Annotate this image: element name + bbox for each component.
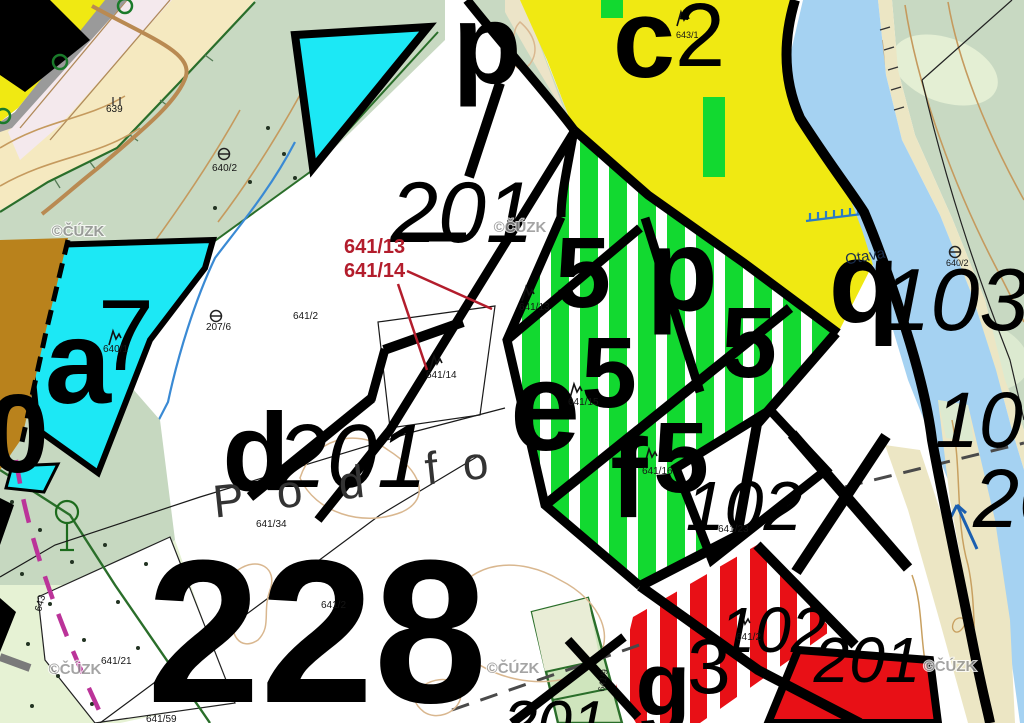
copyright-watermark: ©ČÚZK [924, 657, 977, 675]
red-annotation-label: 641/13 [344, 236, 405, 258]
copyright-watermark: ©ČÚZK [494, 218, 547, 236]
parcel-label: 5 [581, 317, 637, 429]
parcel-label: 0 [0, 372, 49, 496]
parcel-label: 7 [98, 280, 154, 392]
parcel-label: 228 [147, 518, 487, 723]
parcel-label: f [610, 416, 648, 541]
small-parcel-number: 641/14 [426, 370, 457, 381]
place-name-letter: d [336, 455, 367, 509]
small-parcel-number: 641/23 [718, 524, 749, 535]
parcel-label: g [636, 635, 691, 723]
small-parcel-number: 641/2 [293, 311, 318, 322]
cadastral-map-viewport[interactable]: p201c2a70d2012285p5e5f5102q103103201g310… [0, 0, 1024, 723]
small-parcel-number: 641/21 [101, 656, 132, 667]
small-parcel-number: 640/2 [946, 258, 969, 268]
parcel-label: 5 [721, 287, 777, 399]
small-parcel-number: 640/2 [212, 163, 237, 174]
copyright-watermark: ©ČÚZK [52, 222, 105, 240]
place-name-letter: o [274, 464, 305, 518]
parcel-label: 201 [502, 689, 606, 723]
small-parcel-number: 641/2 [736, 632, 761, 643]
place-name-letter: o [460, 436, 491, 490]
small-parcel-number: 641/15 [568, 397, 599, 408]
small-parcel-number: 641/16 [642, 466, 673, 477]
cadastral-map[interactable]: p201c2a70d2012285p5e5f5102q103103201g310… [0, 0, 1024, 723]
parcel-label: c [613, 0, 675, 101]
small-parcel-number: 641/34 [256, 519, 287, 530]
parcel-label: 201 [389, 165, 534, 261]
parcel-label: 103 [935, 375, 1024, 464]
parcel-label: 102 [720, 594, 827, 666]
small-parcel-number: 639 [106, 104, 123, 115]
copyright-watermark: ©ČÚZK [487, 659, 540, 677]
small-parcel-number: 641/2 [321, 600, 346, 611]
red-annotation-label: 641/14 [344, 260, 406, 282]
small-parcel-number: 640/1 [103, 344, 128, 355]
parcel-label: 2 [675, 0, 725, 86]
place-name-letter: P [210, 473, 246, 528]
parcel-label: p [452, 0, 521, 107]
copyright-watermark: ©ČÚZK [49, 660, 102, 678]
parcel-label: 201 [813, 624, 921, 696]
parcel-label: 201 [972, 452, 1024, 545]
small-parcel-number: 641/13 [519, 302, 550, 313]
parcel-label: 5 [555, 217, 611, 329]
small-parcel-number: 643/1 [676, 30, 699, 40]
parcel-label: p [646, 204, 717, 335]
small-parcel-number: 641/59 [146, 714, 177, 723]
small-parcel-number: 207/6 [206, 322, 231, 333]
